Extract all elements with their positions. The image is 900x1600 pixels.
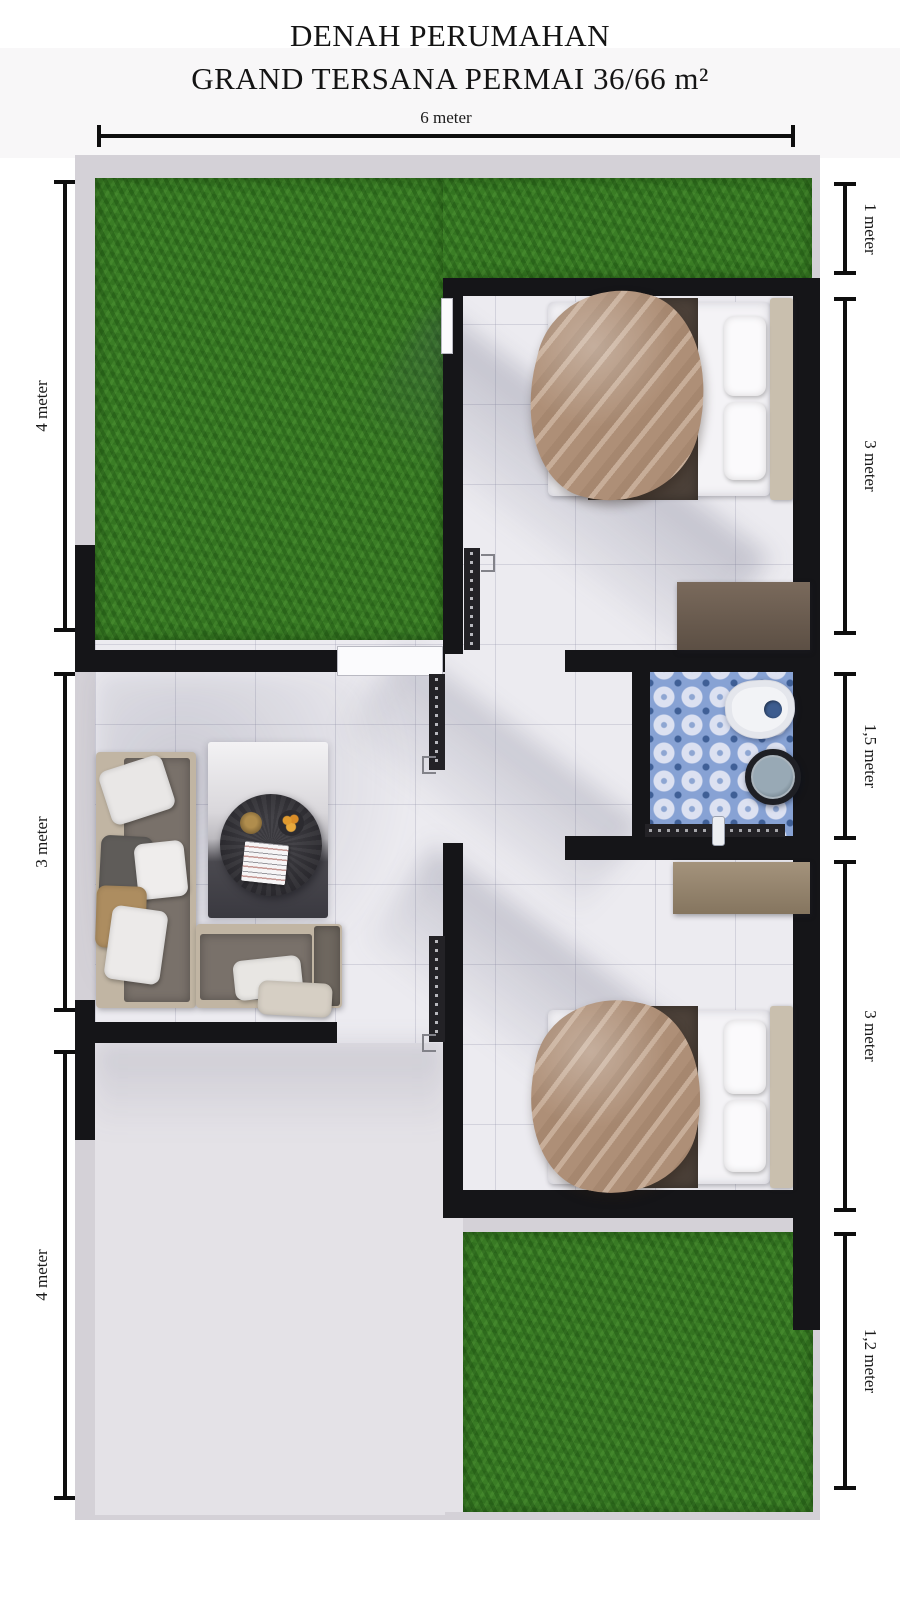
door-handle bbox=[422, 756, 436, 774]
wall-living-bottom bbox=[75, 1022, 337, 1043]
dimension-line bbox=[843, 1232, 847, 1490]
dimension-line bbox=[843, 297, 847, 635]
sofa-cushion bbox=[257, 980, 333, 1018]
dimension-label: 6 meter bbox=[97, 108, 795, 128]
page-title: DENAH PERUMAHAN GRAND TERSANA PERMAI 36/… bbox=[0, 14, 900, 101]
pillow bbox=[724, 402, 766, 480]
house-plot bbox=[75, 155, 820, 1520]
dimension-cap bbox=[834, 297, 856, 301]
dimension-line bbox=[843, 860, 847, 1212]
wall-bathroom-top bbox=[565, 650, 810, 672]
bed-bedroom1 bbox=[540, 296, 793, 502]
magazine bbox=[241, 841, 289, 885]
pillow bbox=[724, 1100, 766, 1172]
dimension-label: 3 meter bbox=[32, 816, 52, 867]
dimension-line bbox=[843, 672, 847, 840]
backyard-garden bbox=[463, 1232, 813, 1512]
dimension-label: 1 meter bbox=[860, 203, 880, 254]
window-living bbox=[337, 646, 443, 676]
bed-bedroom2 bbox=[540, 1004, 793, 1190]
dimension-left-1: 4 meter bbox=[54, 180, 76, 632]
dimension-label: 4 meter bbox=[32, 1249, 52, 1300]
dimension-line bbox=[843, 182, 847, 275]
door-bedroom2 bbox=[429, 936, 445, 1042]
dimension-right-4: 3 meter bbox=[834, 860, 856, 1212]
dresser-bedroom2 bbox=[673, 862, 810, 914]
title-line-2: GRAND TERSANA PERMAI 36/66 m² bbox=[0, 57, 900, 100]
toilet-hole bbox=[764, 699, 783, 718]
door-bedroom1 bbox=[464, 548, 480, 650]
dimension-label: 4 meter bbox=[32, 380, 52, 431]
front-garden bbox=[95, 178, 443, 640]
dimension-cap bbox=[834, 182, 856, 186]
dimension-left-2: 3 meter bbox=[54, 672, 76, 1012]
dimension-cap bbox=[834, 271, 856, 275]
dimension-cap bbox=[834, 860, 856, 864]
wall-left-outer-b bbox=[75, 1000, 95, 1140]
dimension-label: 1,5 meter bbox=[860, 724, 880, 788]
title-line-1: DENAH PERUMAHAN bbox=[0, 14, 900, 57]
dimension-cap bbox=[834, 631, 856, 635]
dimension-line bbox=[97, 134, 795, 138]
dimension-top: 6 meter bbox=[97, 108, 795, 154]
door-handle bbox=[422, 1034, 436, 1052]
dimension-right-1: 1 meter bbox=[834, 182, 856, 275]
dimension-label: 3 meter bbox=[860, 440, 880, 491]
wall-bedroom2-left bbox=[443, 843, 463, 1218]
fruit-bowl bbox=[278, 810, 304, 836]
wall-bathroom-bottom bbox=[565, 836, 810, 860]
floor-plan-page: DENAH PERUMAHAN GRAND TERSANA PERMAI 36/… bbox=[0, 0, 900, 1600]
side-path bbox=[437, 1218, 463, 1512]
door-handle bbox=[481, 554, 495, 572]
dimension-line bbox=[63, 180, 67, 632]
dimension-cap bbox=[834, 1208, 856, 1212]
sofa-cushion bbox=[103, 904, 169, 985]
door-bathroom-knob bbox=[712, 816, 725, 846]
dimension-label: 1,2 meter bbox=[860, 1329, 880, 1393]
dimension-cap bbox=[54, 628, 76, 632]
dimension-cap bbox=[54, 180, 76, 184]
dimension-label: 3 meter bbox=[860, 1010, 880, 1061]
water-basin bbox=[745, 749, 801, 805]
dimension-cap bbox=[54, 1050, 76, 1054]
dimension-line bbox=[63, 672, 67, 1012]
wall-bedroom2-bottom bbox=[443, 1190, 820, 1218]
dimension-right-3: 1,5 meter bbox=[834, 672, 856, 840]
wall-bathroom-left bbox=[632, 650, 650, 840]
pillow bbox=[724, 316, 766, 396]
dimension-cap bbox=[834, 1486, 856, 1490]
dimension-line bbox=[63, 1050, 67, 1500]
desk-bedroom1 bbox=[677, 582, 810, 650]
dimension-right-2: 3 meter bbox=[834, 297, 856, 635]
dimension-cap bbox=[834, 836, 856, 840]
dimension-left-3: 4 meter bbox=[54, 1050, 76, 1500]
dimension-right-5: 1,2 meter bbox=[834, 1232, 856, 1490]
dimension-cap bbox=[834, 1232, 856, 1236]
dimension-cap bbox=[54, 1496, 76, 1500]
wall-right-outer bbox=[793, 278, 820, 1330]
dimension-cap bbox=[791, 125, 795, 147]
dimension-cap bbox=[97, 125, 101, 147]
headboard bbox=[770, 1006, 793, 1188]
gold-tray bbox=[240, 812, 262, 834]
dimension-cap bbox=[54, 672, 76, 676]
pillow bbox=[724, 1020, 766, 1094]
terrace-floor bbox=[95, 1043, 445, 1515]
dimension-cap bbox=[834, 672, 856, 676]
dimension-cap bbox=[54, 1008, 76, 1012]
headboard bbox=[770, 298, 793, 500]
window-bedroom1 bbox=[441, 298, 453, 354]
wall-left-outer-a bbox=[75, 545, 95, 672]
